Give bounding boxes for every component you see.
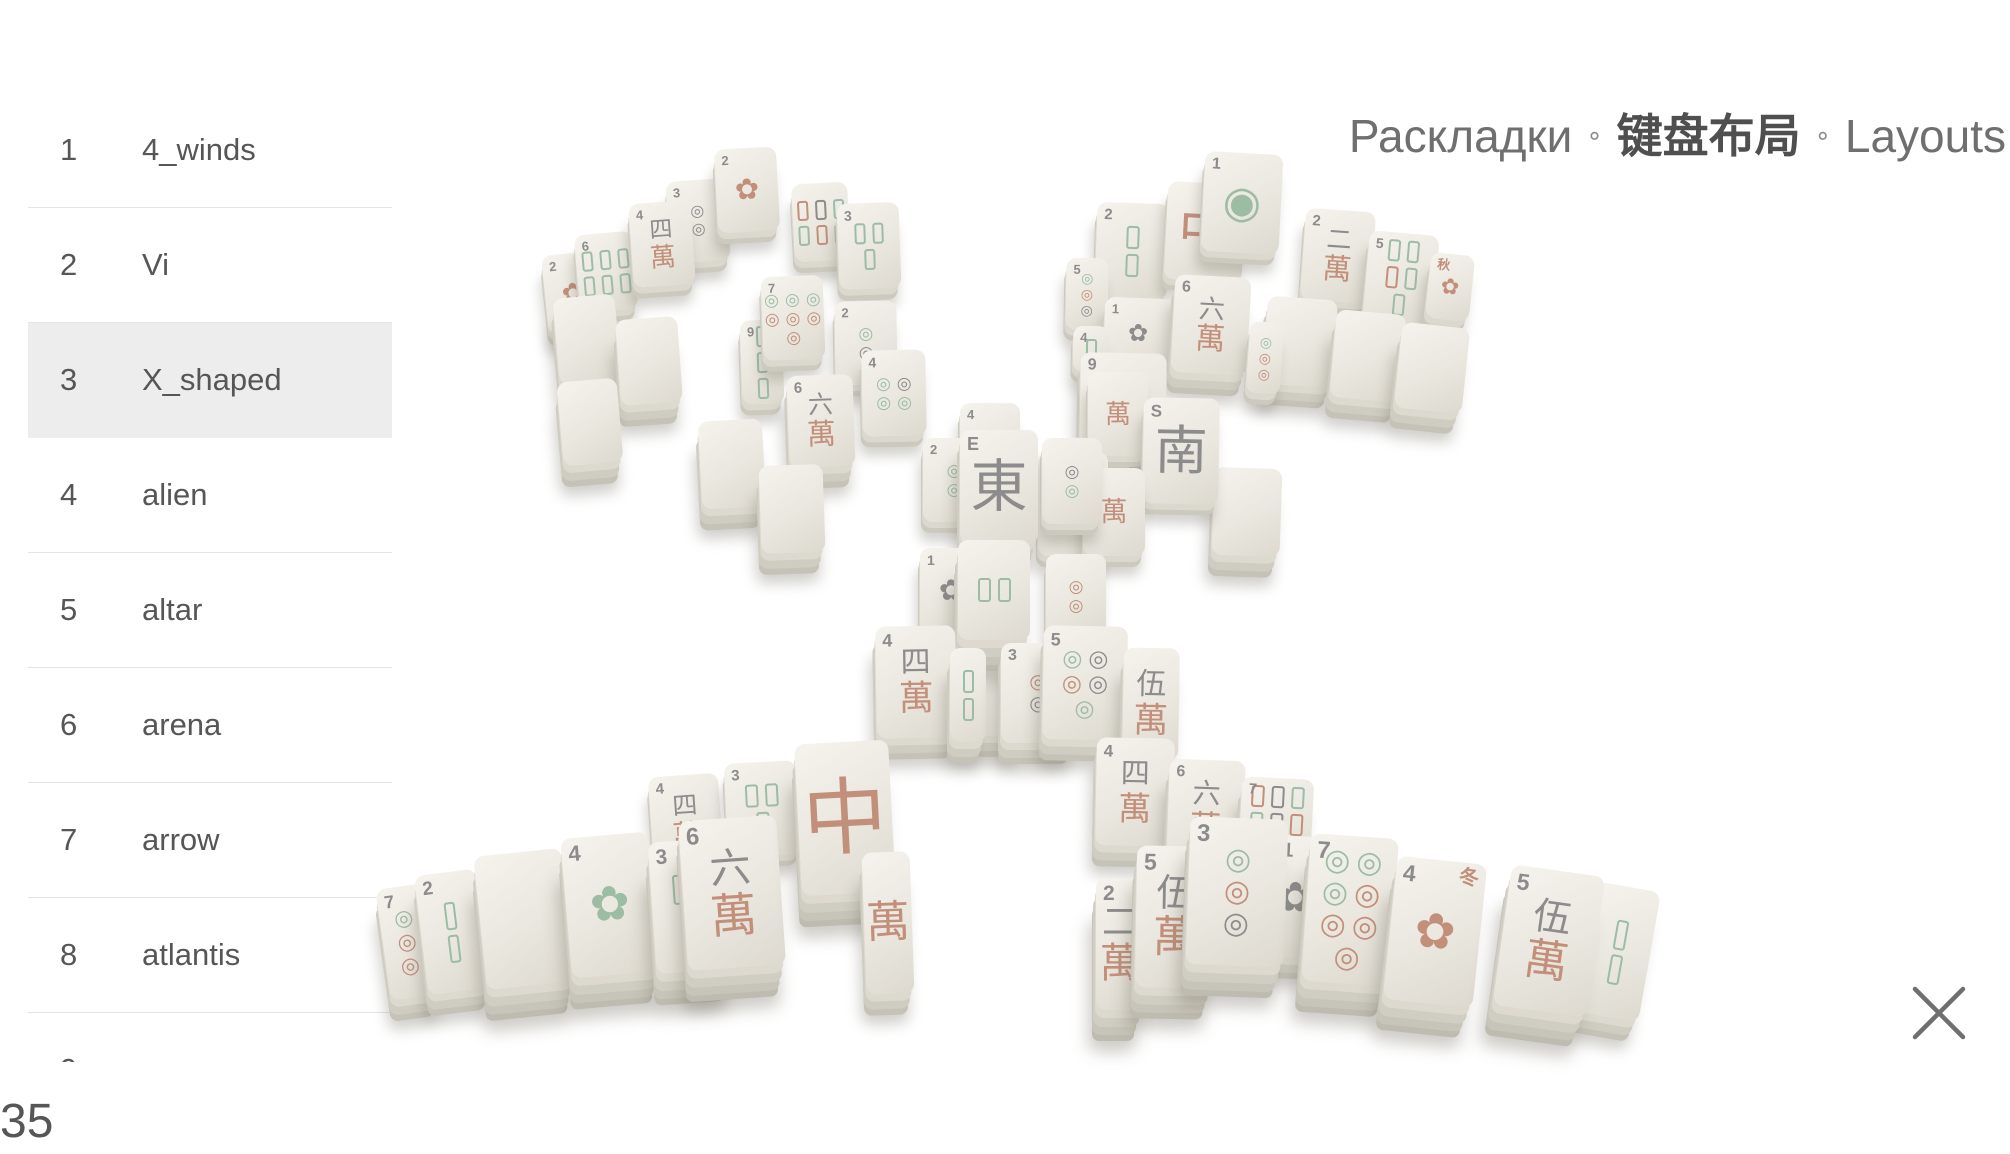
layout-list-item-Vi[interactable]: 2Vi (28, 208, 392, 323)
tile-rank: 7 (1316, 839, 1331, 864)
mahjong-tile: 1✿ (1270, 835, 1320, 959)
mahjong-tile: 萬 (862, 851, 915, 995)
layout-list-item-arena[interactable]: 6arena (28, 668, 392, 783)
tile-face-bamboo (576, 247, 637, 297)
tile-rank: 5 (1073, 263, 1080, 276)
tile-rank: 1 (1112, 302, 1120, 315)
tile-face-bamboo (971, 433, 1009, 453)
mahjong-tile: 4✿ (560, 831, 660, 978)
tile-rank: 3 (731, 768, 740, 783)
mahjong-tile (758, 464, 825, 554)
title-chinese: 键盘布局 (1617, 110, 1801, 162)
tile-face-bamboo (959, 670, 978, 721)
mahjong-tile: 2二萬 (1300, 208, 1376, 305)
mahjong-tile: 9 (740, 319, 785, 404)
tile-rank: 3 (1197, 822, 1211, 846)
mahjong-tile (791, 182, 851, 263)
tile-face-man: 六萬 (805, 392, 836, 450)
tile-face-bamboo (1121, 225, 1144, 277)
mahjong-tile: 4四萬 (1095, 737, 1175, 846)
tile-rank: 9 (747, 325, 755, 338)
tile-rank: 6 (685, 825, 700, 850)
tile-face-flower: ✿ (588, 879, 632, 930)
tile-rank: 1 (1282, 840, 1294, 861)
tile-face-man: 萬 (1105, 401, 1131, 427)
mahjong-tile: 伍萬 (1122, 648, 1180, 761)
tile-face-man: 伍萬 (1133, 670, 1169, 739)
mahjong-tile: 4 (1073, 326, 1110, 373)
tile-rank: 6 (794, 381, 803, 396)
tile-face-circles: ◎◎ (1060, 463, 1085, 499)
layout-list-item-4_winds[interactable]: 14_winds (28, 93, 392, 208)
layout-count: 35 (0, 1094, 53, 1149)
layout-item-label: Vi (142, 247, 169, 283)
mahjong-tile: 2◎◎ (923, 438, 985, 522)
tile-face-bamboo (1081, 339, 1100, 359)
tile-face-man: 六萬 (1194, 295, 1227, 355)
mahjong-tile: 中 (1163, 181, 1246, 283)
tile-face-circles: ◎◎ (685, 203, 711, 239)
tile-rank: 5 (1051, 630, 1061, 648)
tile-rank: 6 (1176, 764, 1185, 780)
mahjong-tile: 萬 (1083, 468, 1145, 556)
tile-face-circles: ◎◎◎◎◎◎◎ (1302, 844, 1399, 976)
tile-face-circles: ◎◎◎◎◎◎◎ (761, 289, 825, 346)
tile-face-flower: ✿ (1440, 275, 1461, 299)
mahjong-tile: 2◎◎ (834, 300, 897, 385)
mahjong-tile (1575, 881, 1661, 1022)
tile-face-bamboo (1378, 238, 1424, 317)
tile-rank: 2 (1104, 207, 1113, 222)
page-title: Раскладки∘键盘布局∘Layouts (1349, 100, 2006, 166)
tile-face-bamboo (1603, 918, 1634, 985)
layout-item-label: arena (142, 707, 221, 743)
tile-face-bamboo (751, 325, 773, 399)
mahjong-tile: 4◎◎◎◎ (861, 349, 926, 436)
mahjong-tile (950, 648, 986, 742)
tile-rank: 4 (1104, 742, 1114, 759)
tile-rank: 4 (655, 781, 664, 797)
tile-rank: 5 (1144, 850, 1157, 873)
title-english: Layouts (1845, 110, 2006, 162)
mahjong-tile: 3 (837, 202, 902, 290)
mahjong-tile: 5伍萬 (1135, 845, 1215, 988)
tile-rank: 2 (930, 443, 937, 456)
tile-face-man: 六萬 (705, 846, 758, 940)
mahjong-tile: 5◎◎◎◎◎ (1042, 625, 1128, 740)
tile-face-circles: ◎◎◎ (1252, 334, 1277, 381)
tile-face-bamboo (849, 222, 889, 270)
tile-face-man: 萬 (865, 900, 911, 946)
mahjong-tile (1262, 296, 1338, 389)
layout-item-number: 8 (60, 937, 112, 973)
tile-rank: 2 (1312, 213, 1321, 229)
mahjong-tile: ◎◎ (1046, 554, 1106, 638)
tile-rank: 7 (768, 282, 776, 295)
mahjong-tile: S南 (1142, 397, 1220, 504)
mahjong-tile: 6六萬 (786, 374, 855, 468)
tile-rank: 4 (567, 842, 581, 865)
mahjong-tile (698, 418, 767, 509)
tile-face-man: 六萬 (1189, 779, 1223, 843)
mahjong-tile (556, 378, 623, 467)
mahjong-tile: 4冬✿ (1383, 856, 1488, 1009)
tile-rank: 4 (1402, 861, 1417, 885)
tile-face-flower: ✿ (939, 577, 963, 606)
tile-face-man: 二萬 (1322, 227, 1355, 286)
mahjong-tile (1062, 437, 1130, 526)
mahjong-tile: E東 (1038, 452, 1108, 556)
tile-face-bamboo (740, 782, 785, 835)
tile-face-dragon: 中 (1177, 204, 1234, 261)
mahjong-tile: 5伍萬 (1493, 864, 1606, 1018)
layout-list-item-X_shaped[interactable]: 3X_shaped (28, 323, 392, 438)
tile-rank: 2 (841, 306, 848, 319)
tile-rank: 4 (868, 355, 876, 369)
tile-face-bamboo (439, 901, 465, 964)
tile-rank: S (1151, 402, 1163, 419)
tile-face-man: 四萬 (647, 217, 677, 271)
mahjong-tile: 6六萬 (678, 815, 786, 971)
tile-face-man: 萬 (1101, 499, 1128, 526)
mahjong-tile: 2 (414, 869, 490, 996)
tile-face-bamboo (1243, 784, 1310, 863)
mahjong-tile: ◎◎◎ (1246, 321, 1285, 395)
layout-item-label: alien (142, 477, 208, 513)
mahjong-tile: 3◎◎ (1001, 643, 1075, 743)
layout-item-label: X_shaped (142, 362, 282, 398)
tile-face-wind: 東 (971, 459, 1028, 516)
tile-face-bamboo (667, 872, 713, 940)
mahjong-tile: 5◎◎◎ (1065, 258, 1108, 331)
tile-rank: 4 (635, 208, 643, 221)
tile-face-man: 伍萬 (1152, 874, 1197, 960)
layout-list-item-atlantis[interactable]: 8atlantis (28, 898, 392, 1013)
mahjong-tile: 1✿ (920, 548, 982, 634)
tile-rank: 1 (1212, 156, 1222, 172)
tile-rank: 6 (1182, 279, 1192, 295)
tile-rank: 2 (1103, 883, 1115, 904)
mahjong-tile: 7◎◎◎◎◎◎◎ (761, 275, 826, 361)
layout-item-number: 4 (60, 477, 112, 513)
mahjong-tile: 萬 (1088, 372, 1148, 456)
tile-face-circles: ◎◎ (853, 325, 879, 361)
tile-face-wind: 南 (1154, 424, 1208, 478)
mahjong-tile: 3 (724, 760, 801, 858)
layout-item-number: 7 (60, 822, 112, 858)
tile-rank: 7 (1248, 782, 1257, 797)
layout-item-number: 5 (60, 592, 112, 628)
mahjong-tile: 9九萬 (1079, 352, 1167, 453)
layout-item-label: arrow (142, 822, 220, 858)
tile-rank: 6 (581, 239, 589, 253)
mahjong-tile: 1✿ (1103, 297, 1173, 371)
mahjong-tile: 6 (574, 231, 639, 314)
tile-rank: 2 (548, 260, 557, 274)
mahjong-tile: 3◎◎◎ (1185, 816, 1288, 967)
tile-rank: 1 (927, 553, 935, 567)
layout-item-label: atlantis (142, 937, 240, 973)
layout-item-number: 9 (60, 1052, 112, 1062)
layout-list-item-9[interactable]: 9 (28, 1013, 392, 1062)
tile-face-man: 四萬 (898, 648, 934, 717)
tile-face-flower: ✿ (1277, 876, 1313, 919)
tile-face-circles: ◎◎◎ (1216, 844, 1257, 939)
tile-rank: 秋 (1437, 258, 1451, 272)
tile-rank: E (1045, 457, 1056, 474)
mahjong-tile: 6六萬 (1166, 759, 1246, 864)
mahjong-tile: 2 (1094, 202, 1169, 300)
mahjong-tile: 3◎◎ (665, 178, 731, 264)
tile-face-circles: ◎◎ (942, 462, 967, 498)
tile-season-mark: 冬 (1458, 867, 1480, 889)
tile-face-flower: ✿ (560, 278, 585, 307)
tile-rank: 9 (1088, 357, 1097, 373)
layout-item-number: 6 (60, 707, 112, 743)
layout-item-label: 4_winds (142, 132, 256, 168)
tile-face-wind: 東 (1047, 478, 1099, 530)
mahjong-tile: 4四萬 (648, 773, 724, 872)
tile-face-flower: ✿ (1412, 905, 1458, 958)
layout-list-item-arrow[interactable]: 7arrow (28, 783, 392, 898)
tile-face-circles: ◎◎ (1064, 578, 1089, 614)
tile-face-bamboo (973, 578, 1015, 602)
tile-face-circles: ◎◎◎◎ (869, 375, 920, 412)
tile-face-dragon: 中 (801, 774, 889, 862)
layout-item-number: 2 (60, 247, 112, 283)
tile-rank: 5 (1515, 870, 1531, 895)
layout-list-item-alien[interactable]: 4alien (28, 438, 392, 553)
tile-rank: 3 (673, 186, 681, 199)
mahjong-tile (1394, 322, 1471, 415)
mahjong-tile: 7 (1238, 776, 1315, 872)
tile-face-flower: ✿ (1128, 322, 1149, 347)
layout-item-label: altar (142, 592, 202, 628)
tile-face-flower: ✿ (734, 175, 760, 205)
tile-face-circles: ◎◎ (1024, 672, 1052, 714)
layout-item-number: 3 (60, 362, 112, 398)
tile-rank: E (967, 435, 979, 453)
tile-rank: 3 (1008, 648, 1017, 664)
tile-rank: 4 (967, 408, 974, 421)
tile-face-man: 伍萬 (1521, 896, 1576, 986)
layout-list: 14_winds2Vi3X_shaped4alien5altar6arena7a… (28, 93, 392, 1062)
mahjong-tile: 2✿ (541, 250, 605, 335)
tile-rank: 4 (1080, 331, 1087, 344)
mahjong-tile: 7◎◎◎◎◎◎◎ (1301, 833, 1399, 987)
mahjong-tile (473, 848, 575, 990)
tile-face-circles: ◎◎◎ (387, 905, 426, 978)
mahjong-tile: E東 (960, 430, 1038, 544)
tile-rank: 5 (1375, 236, 1384, 251)
layouts-screen: { "header": { "title_ru": "Раскладки", "… (0, 0, 2010, 1154)
title-separator: ∘ (1815, 120, 1831, 150)
mahjong-tile: 4 (960, 403, 1020, 483)
tile-rank: 2 (421, 879, 434, 899)
title-russian: Раскладки (1349, 110, 1572, 162)
mahjong-tile: 4四萬 (875, 625, 957, 738)
tile-face-circles: ◎◎◎ (1076, 271, 1099, 317)
tile-rank: 2 (721, 154, 729, 167)
mahjong-tile (1211, 467, 1282, 557)
mahjong-tile: 秋✿ (1425, 252, 1476, 322)
title-separator: ∘ (1586, 120, 1602, 150)
mahjong-tile (956, 642, 1024, 736)
mahjong-tile (552, 293, 621, 384)
layout-list-item-altar[interactable]: 5altar (28, 553, 392, 668)
close-icon (1908, 982, 1970, 1044)
mahjong-tile: 2✿ (714, 146, 780, 233)
mahjong-tile: 中 (794, 740, 896, 897)
tile-face-man: 九萬 (1107, 372, 1139, 434)
tile-face-bamboo (792, 198, 850, 246)
mahjong-tile (1329, 309, 1406, 403)
mahjong-tile: 4四萬 (628, 200, 696, 288)
close-button[interactable] (1908, 982, 1970, 1044)
mahjong-tile: 1◉ (1200, 151, 1283, 255)
mahjong-tile: ◎◎ (1042, 438, 1102, 524)
tile-face-one: ◉ (1222, 180, 1263, 226)
mahjong-tile (615, 316, 683, 406)
mahjong-tile: 5 (1362, 230, 1440, 326)
tile-rank: 3 (655, 846, 668, 868)
tile-face-man: 四萬 (1118, 759, 1152, 825)
tile-face-man: 二萬 (1100, 904, 1141, 984)
mahjong-tile: 6六萬 (1170, 274, 1251, 376)
mahjong-tile: 2二萬 (1096, 878, 1144, 1010)
mahjong-tile (958, 540, 1030, 640)
tile-face-circles: ◎◎◎◎◎ (1053, 646, 1116, 720)
tile-rank: 4 (882, 631, 892, 649)
mahjong-tile: 3 (647, 838, 732, 975)
tile-rank: 3 (844, 209, 852, 223)
tile-face-man: 四萬 (670, 793, 703, 852)
layout-item-number: 1 (60, 132, 112, 168)
